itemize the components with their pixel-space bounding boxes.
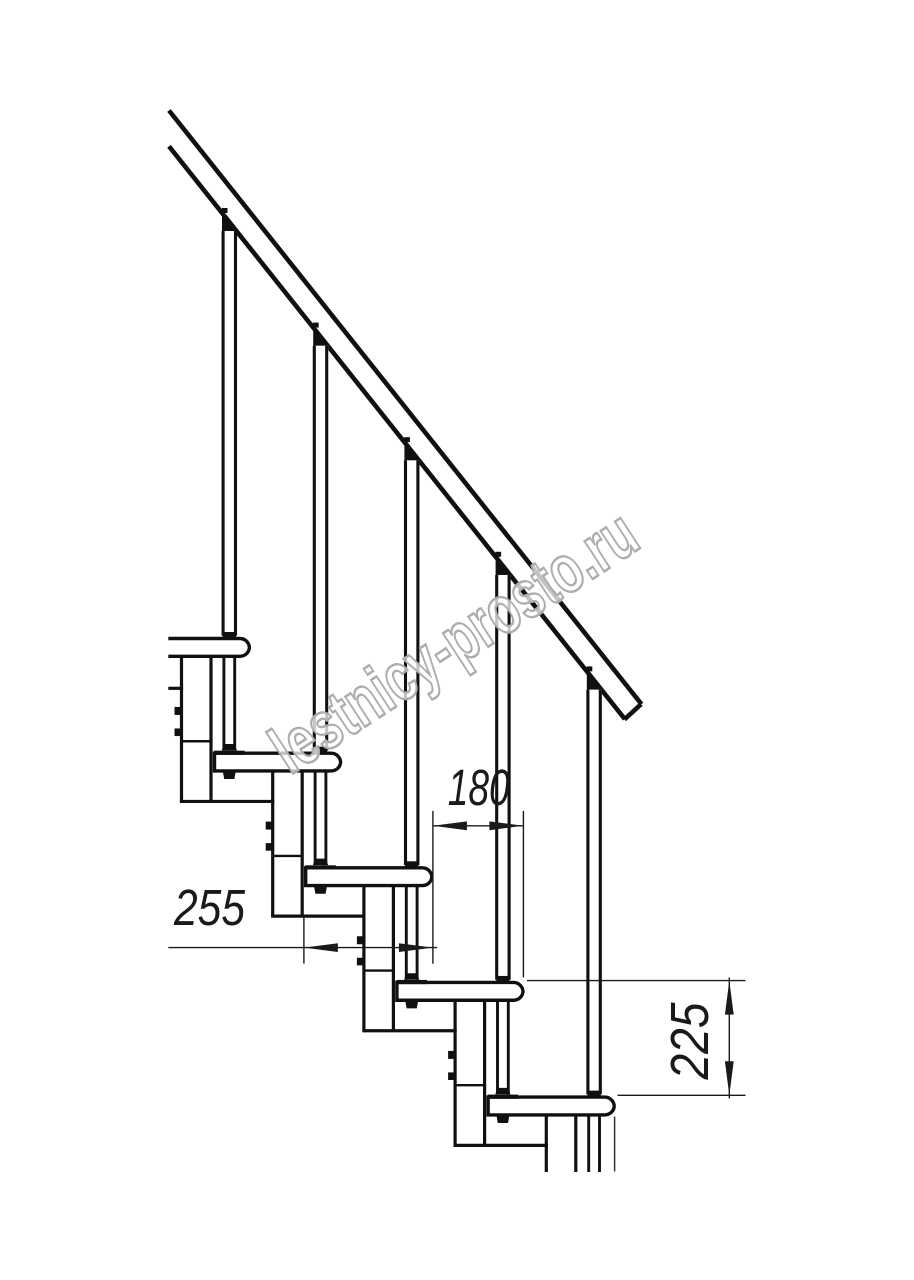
svg-text:225: 225 xyxy=(660,1002,720,1081)
svg-text:180: 180 xyxy=(448,759,510,816)
svg-text:255: 255 xyxy=(173,879,245,936)
